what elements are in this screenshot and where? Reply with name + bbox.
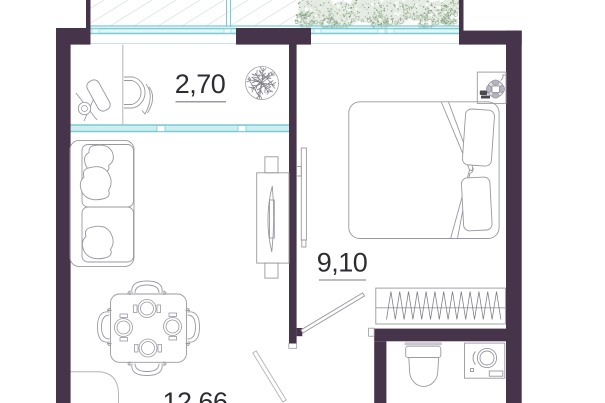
svg-text:2,70: 2,70 xyxy=(175,69,226,99)
svg-text:12,66: 12,66 xyxy=(162,387,227,403)
svg-text:9,10: 9,10 xyxy=(317,248,368,278)
